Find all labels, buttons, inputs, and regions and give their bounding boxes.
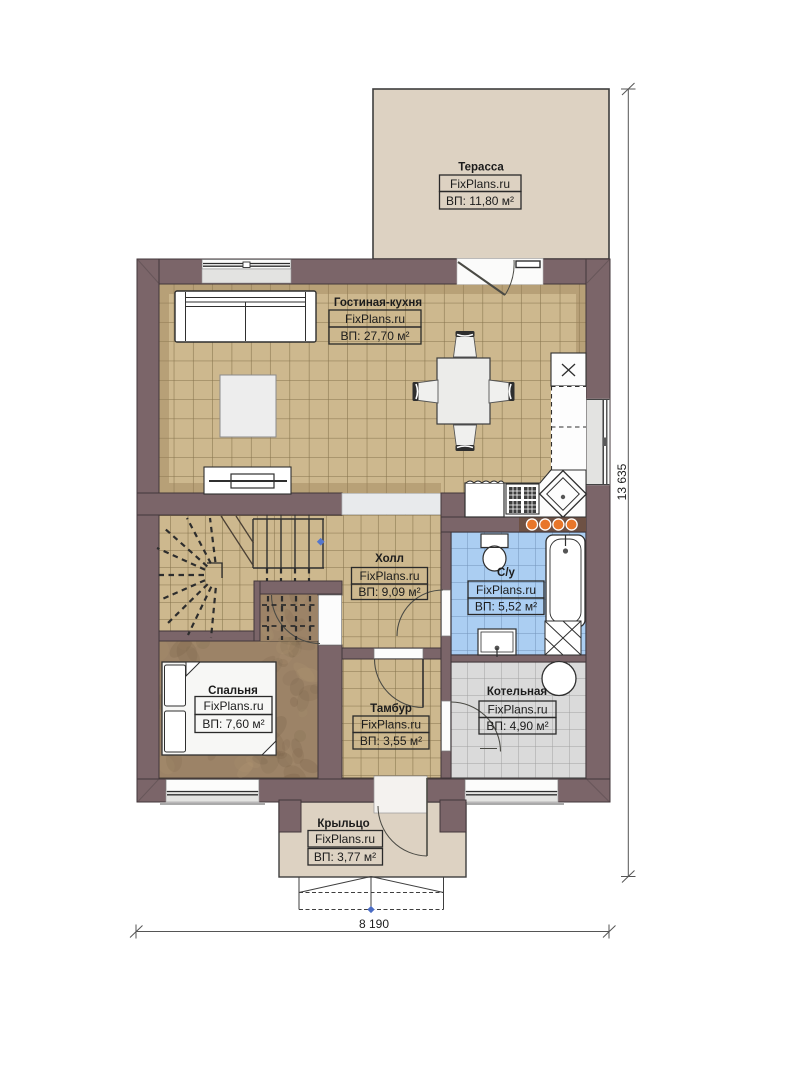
svg-text:FixPlans.ru: FixPlans.ru bbox=[359, 569, 419, 583]
svg-text:Крыльцо: Крыльцо bbox=[317, 818, 369, 830]
svg-text:ВП: 11,80 м²: ВП: 11,80 м² bbox=[446, 194, 514, 208]
svg-text:FixPlans.ru: FixPlans.ru bbox=[315, 832, 375, 846]
svg-text:FixPlans.ru: FixPlans.ru bbox=[203, 699, 263, 713]
svg-text:ВП: 3,55 м²: ВП: 3,55 м² bbox=[360, 734, 422, 748]
svg-text:ВП: 3,77 м²: ВП: 3,77 м² bbox=[314, 850, 376, 864]
svg-text:ВП: 7,60 м²: ВП: 7,60 м² bbox=[202, 717, 264, 731]
svg-text:13 635: 13 635 bbox=[615, 463, 629, 500]
svg-text:ВП: 27,70 м²: ВП: 27,70 м² bbox=[341, 329, 410, 343]
svg-text:FixPlans.ru: FixPlans.ru bbox=[450, 177, 510, 191]
svg-text:ВП: 5,52 м²: ВП: 5,52 м² bbox=[475, 600, 537, 614]
svg-text:Гостиная-кухня: Гостиная-кухня bbox=[334, 297, 422, 309]
svg-text:8 190: 8 190 bbox=[359, 917, 389, 931]
svg-text:FixPlans.ru: FixPlans.ru bbox=[361, 718, 421, 732]
svg-text:FixPlans.ru: FixPlans.ru bbox=[487, 703, 547, 717]
svg-text:Спальня: Спальня bbox=[208, 685, 258, 697]
svg-text:С/у: С/у bbox=[497, 567, 516, 579]
svg-text:Холл: Холл bbox=[375, 553, 404, 565]
svg-text:Терасса: Терасса bbox=[458, 162, 504, 174]
svg-text:ВП: 4,90 м²: ВП: 4,90 м² bbox=[486, 719, 548, 733]
svg-text:ВП: 9,09 м²: ВП: 9,09 м² bbox=[358, 585, 420, 599]
svg-text:FixPlans.ru: FixPlans.ru bbox=[476, 583, 536, 597]
svg-text:Котельная: Котельная bbox=[487, 686, 547, 698]
svg-text:Тамбур: Тамбур bbox=[370, 703, 412, 715]
svg-text:FixPlans.ru: FixPlans.ru bbox=[345, 312, 405, 326]
